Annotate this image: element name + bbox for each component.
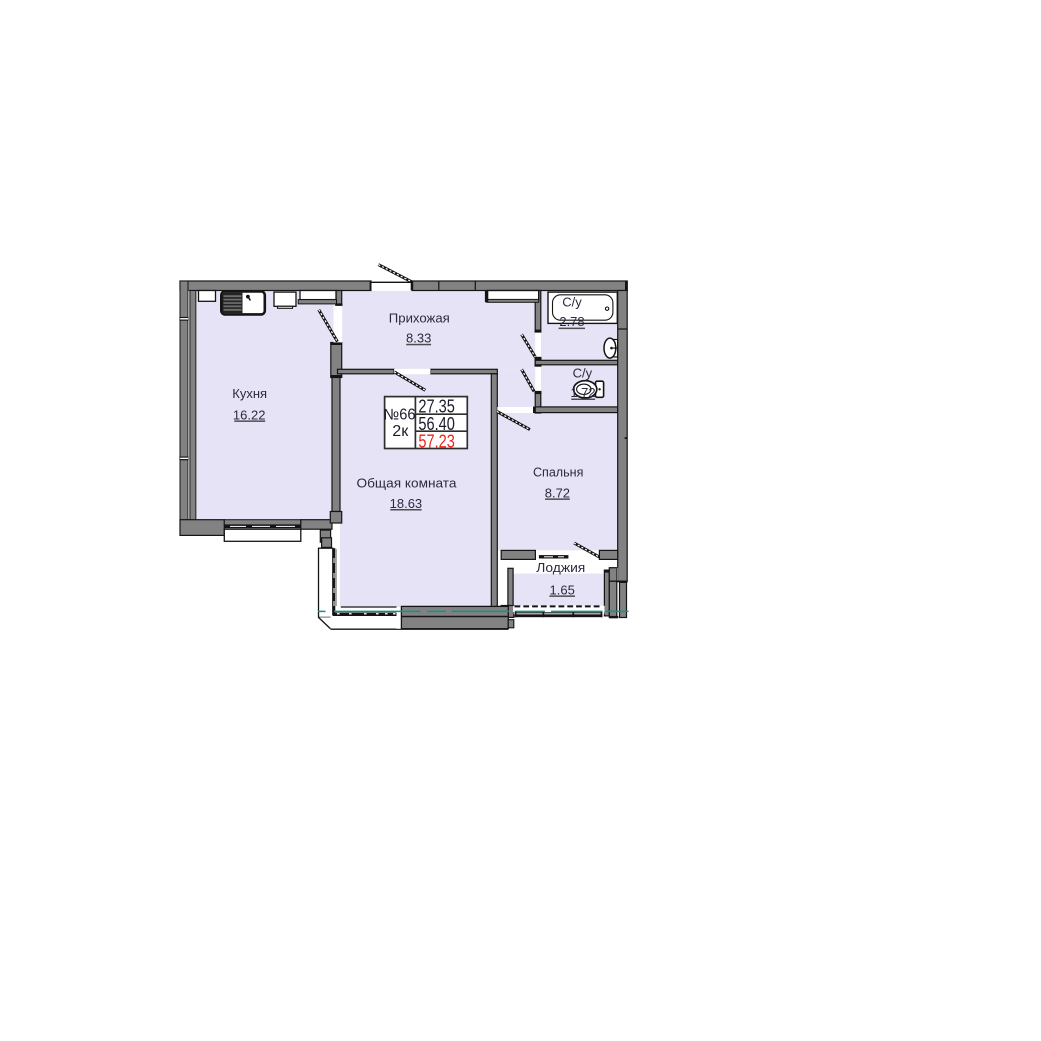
svg-text:С/у: С/у	[573, 366, 593, 381]
svg-text:Спальня: Спальня	[533, 465, 584, 480]
svg-text:57.23: 57.23	[418, 432, 455, 452]
svg-text:1.72: 1.72	[570, 385, 595, 400]
svg-text:Кухня: Кухня	[232, 386, 267, 401]
svg-text:18.63: 18.63	[390, 496, 423, 511]
svg-text:1.65: 1.65	[550, 582, 575, 597]
svg-text:8.72: 8.72	[545, 485, 570, 500]
svg-text:2.78: 2.78	[559, 314, 584, 329]
svg-text:2к: 2к	[392, 423, 408, 440]
svg-text:Лоджия: Лоджия	[536, 560, 585, 575]
svg-text:8.33: 8.33	[406, 330, 431, 345]
svg-text:№66: №66	[384, 406, 416, 423]
svg-text:Общая комната: Общая комната	[357, 476, 458, 491]
svg-text:С/у: С/у	[562, 294, 582, 309]
svg-text:Прихожая: Прихожая	[389, 311, 450, 326]
